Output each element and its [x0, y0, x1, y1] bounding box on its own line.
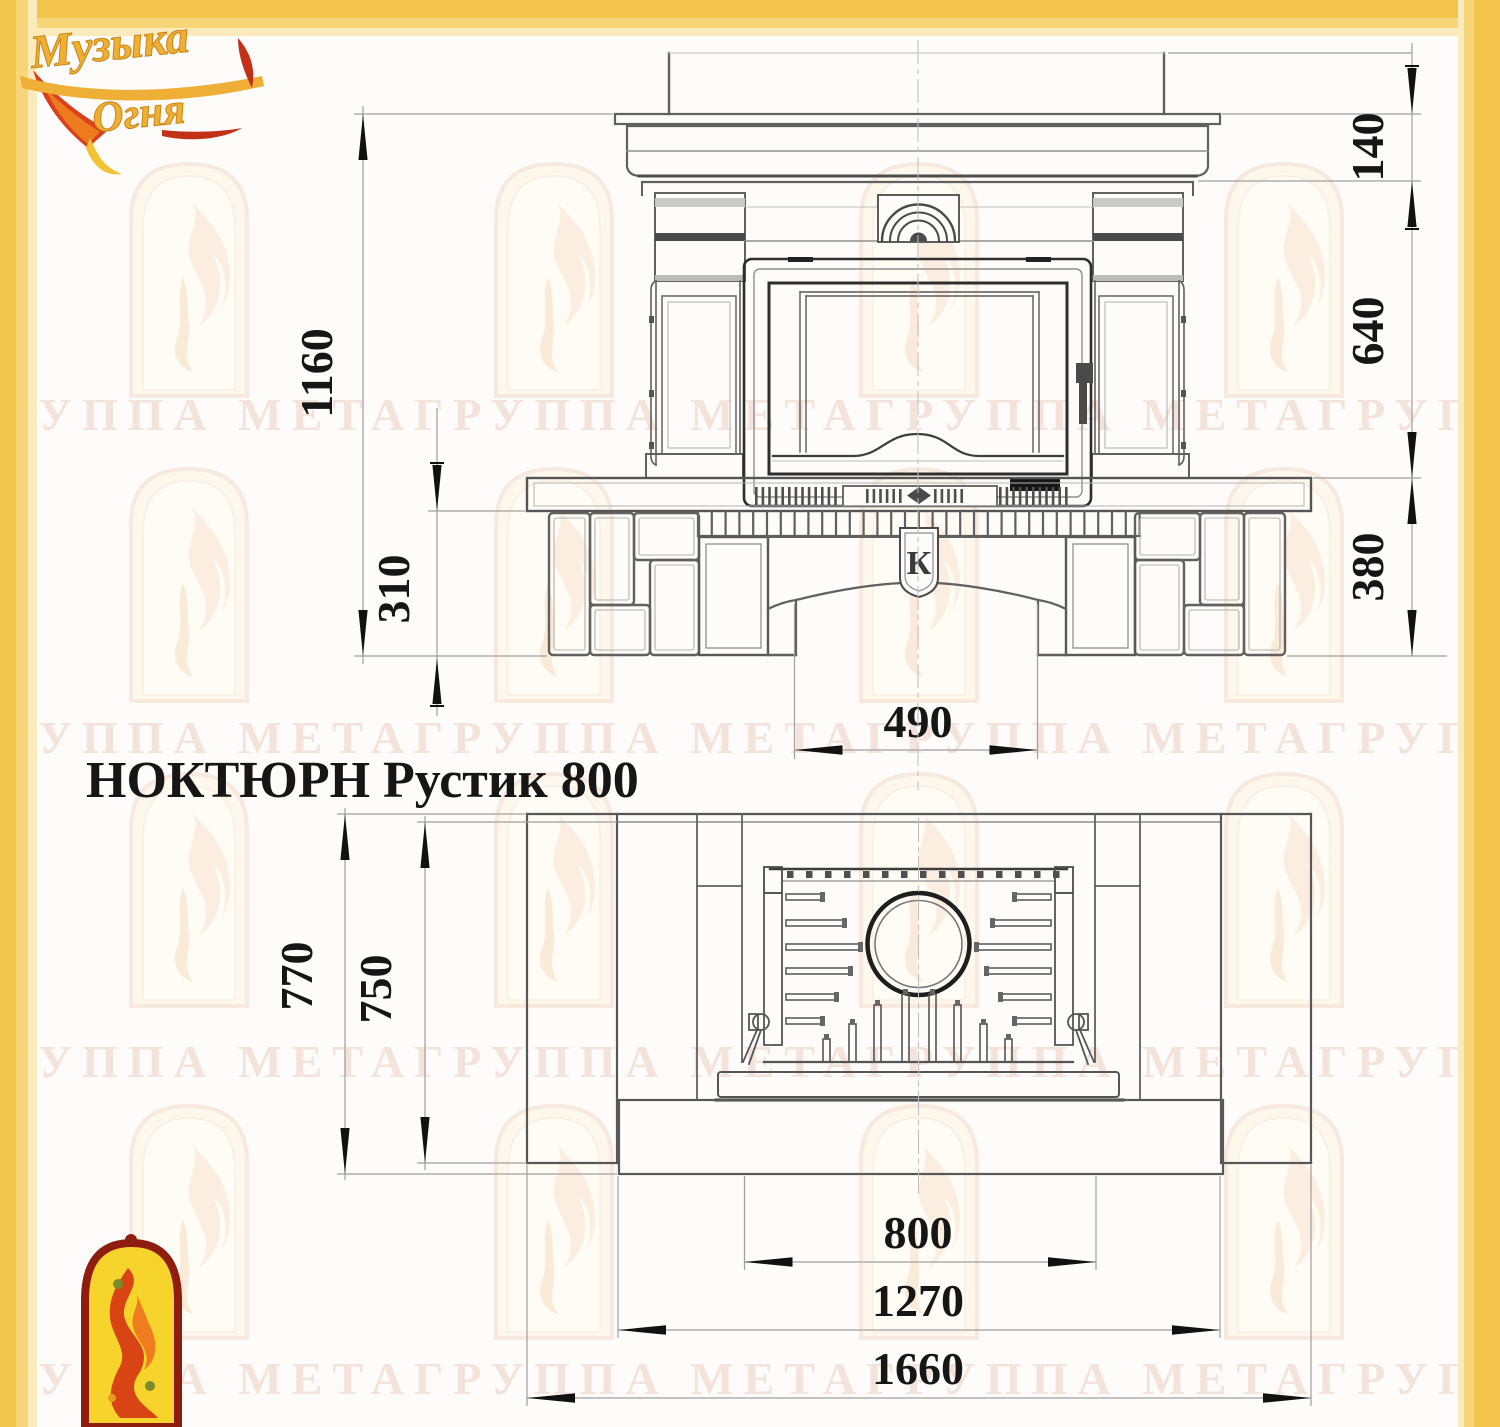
svg-text:310: 310	[368, 555, 419, 624]
svg-text:640: 640	[1342, 297, 1393, 366]
svg-text:800: 800	[884, 1207, 953, 1258]
svg-text:140: 140	[1342, 113, 1393, 182]
svg-text:380: 380	[1342, 533, 1393, 602]
svg-text:1270: 1270	[872, 1275, 964, 1326]
svg-text:ГРУППА МЕТАГРУППА МЕТАГРУППА М: ГРУППА МЕТАГРУППА МЕТАГРУППА МЕТАГРУППА …	[0, 389, 1500, 440]
svg-text:1660: 1660	[872, 1343, 964, 1394]
svg-text:К: К	[907, 545, 932, 582]
svg-text:750: 750	[350, 955, 401, 1024]
svg-text:1160: 1160	[291, 328, 342, 417]
svg-text:НОКТЮРН Рустик 800: НОКТЮРН Рустик 800	[86, 752, 639, 809]
svg-text:770: 770	[271, 942, 322, 1011]
